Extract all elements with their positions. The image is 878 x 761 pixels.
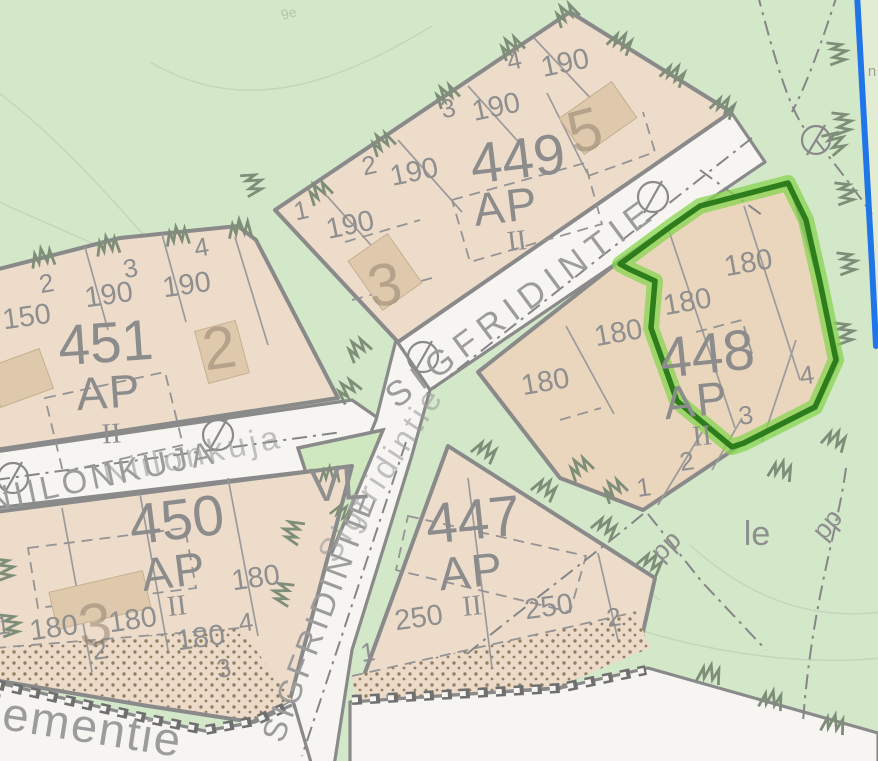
block-447-area: 250 bbox=[393, 599, 445, 637]
block-447-area: 250 bbox=[523, 588, 575, 626]
block-447-floors: II bbox=[461, 589, 484, 623]
right-edge-text-fragment: n bbox=[868, 63, 876, 80]
block-451-zoning: AP bbox=[74, 364, 143, 420]
zone-label-le: le bbox=[744, 515, 770, 553]
block-451-area: 190 bbox=[83, 276, 135, 314]
block-450-area: 180 bbox=[107, 601, 159, 639]
block-451-area: 190 bbox=[161, 266, 213, 304]
block-450-area: 180 bbox=[230, 559, 282, 597]
map-viewport[interactable]: 449 AP II 1 2 3 4 190 190 190 190 3 5 45… bbox=[0, 0, 878, 761]
block-450-area: 180 bbox=[28, 609, 80, 647]
map-canvas[interactable]: 449 AP II 1 2 3 4 190 190 190 190 3 5 45… bbox=[0, 0, 878, 761]
zone-label-vl: VL bbox=[308, 456, 370, 513]
block-449-floors: II bbox=[505, 224, 528, 258]
block-451-floors: II bbox=[101, 417, 123, 450]
block-448-floors: II bbox=[691, 419, 714, 453]
block-450-address-number: 3 bbox=[75, 590, 115, 660]
block-450-floors: II bbox=[165, 589, 188, 623]
block-451-area: 150 bbox=[1, 298, 53, 336]
block-450-area: 180 bbox=[175, 619, 227, 657]
